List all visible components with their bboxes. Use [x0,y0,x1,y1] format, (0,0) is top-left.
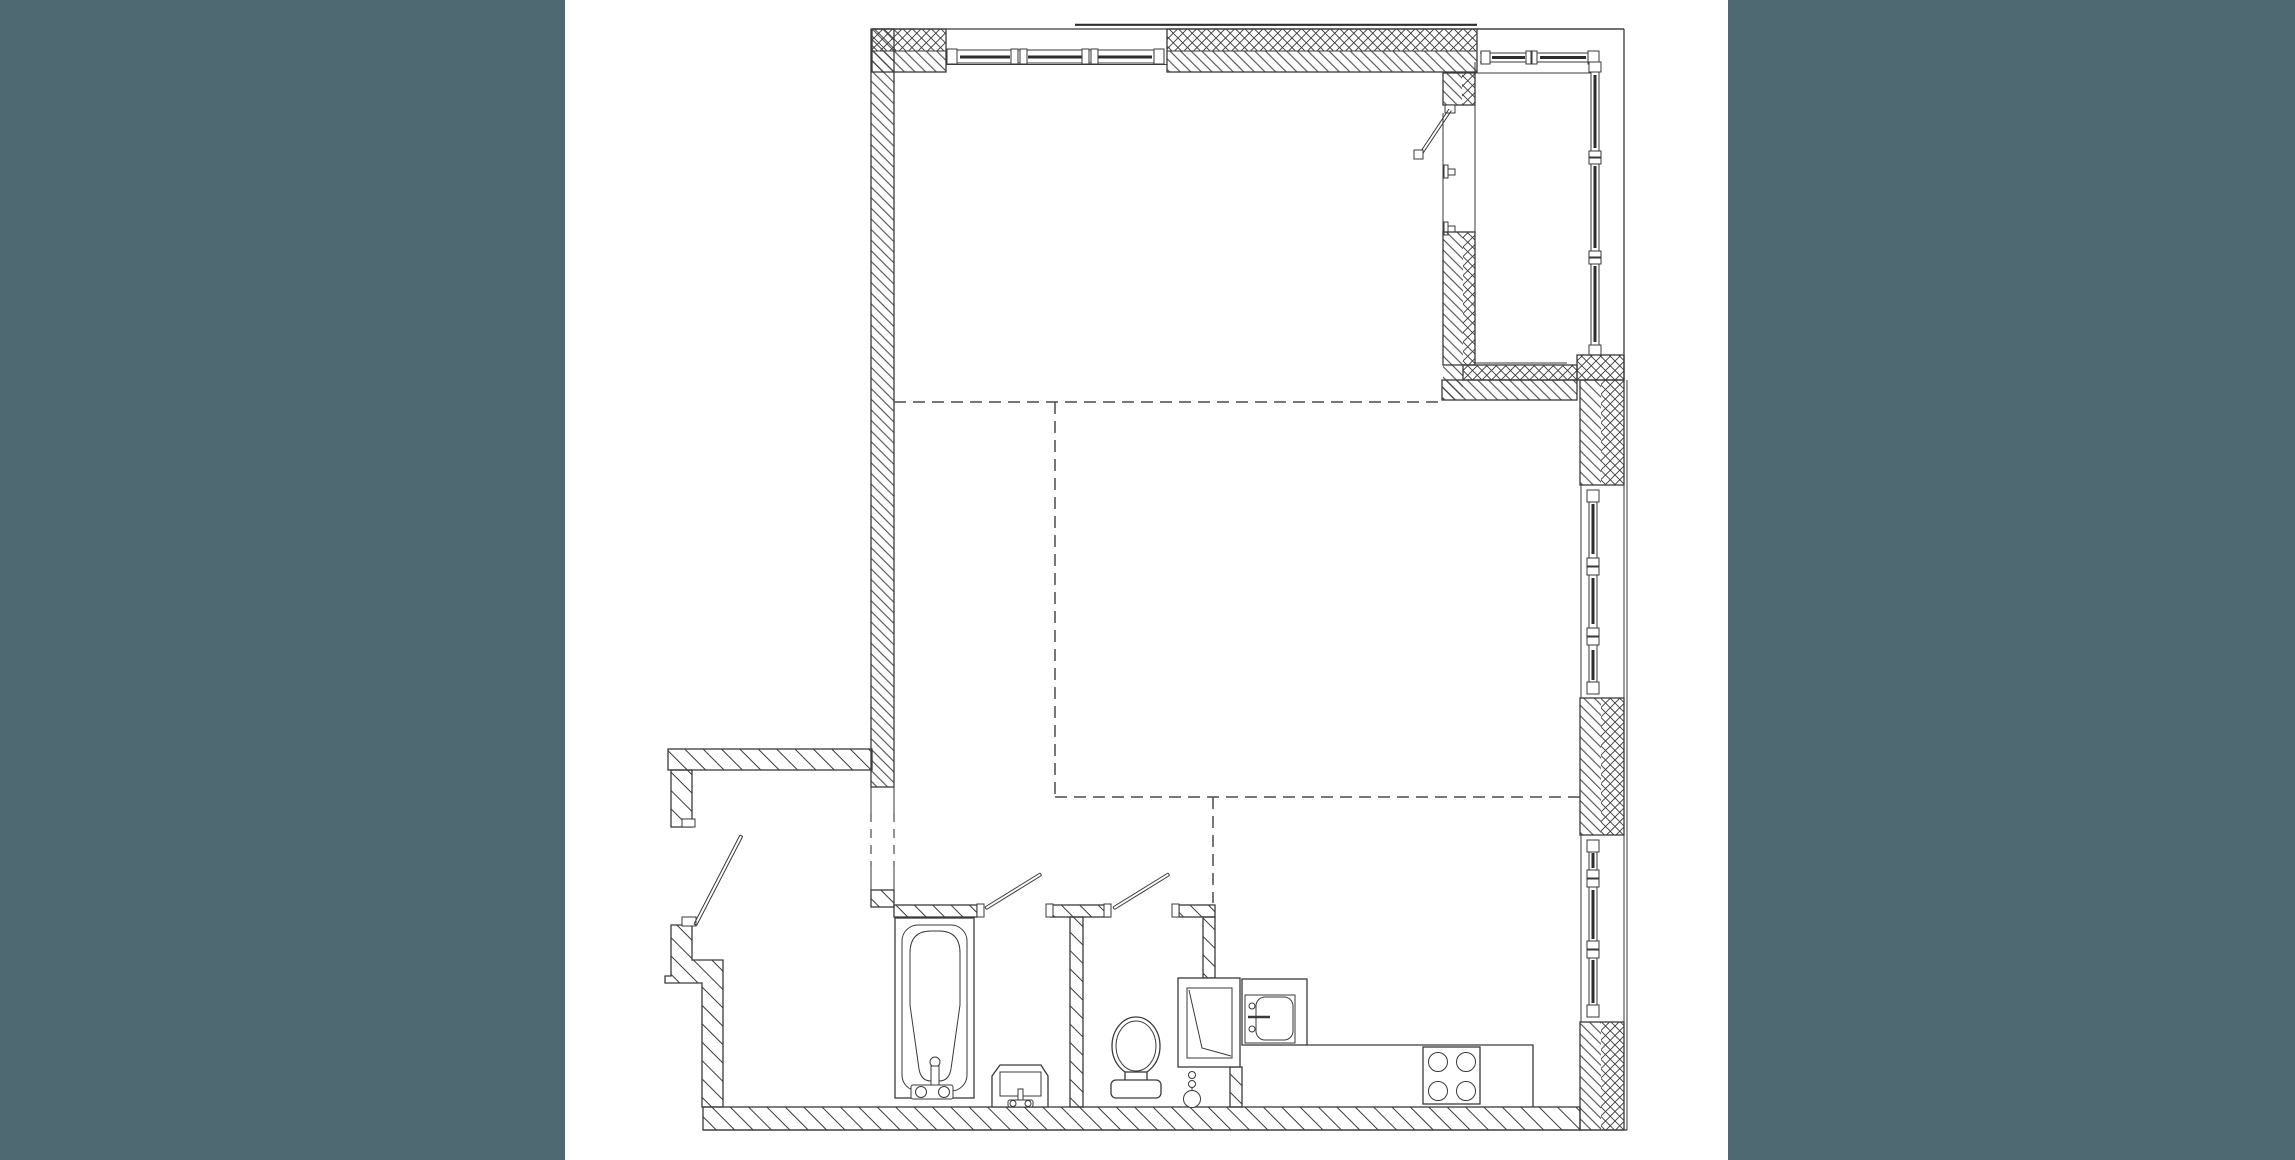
cooktop-4-burner [1423,1047,1480,1104]
door-jamb [977,904,984,917]
window-mullion [1020,49,1027,64]
west-wall [871,29,894,907]
window-mullion [1589,151,1601,157]
window-frame-end [1589,62,1601,72]
window-frame-end [1589,345,1601,355]
screenshot-stage [0,0,2295,1160]
window-mullion [1587,950,1599,958]
burner [1429,1082,1448,1101]
window-frame-end [1587,682,1599,694]
door-jamb [1445,105,1455,113]
window-mullion [1589,258,1601,264]
ventilation-shaft [1178,978,1240,1067]
window-frame-end [1481,51,1490,64]
window-frame-end [1154,49,1164,64]
window-mullion [1587,941,1599,949]
window-mullion [1587,628,1599,636]
window-mullion [1082,49,1089,64]
window-mullion [1589,251,1601,257]
window-mullion [1589,158,1601,164]
bathroom-washbasin [992,1065,1048,1107]
kitchen-sink [1245,995,1295,1043]
window-frame-end [947,49,957,64]
door-jamb [1104,904,1111,917]
window-mullion [1091,49,1098,64]
left-side-panel [0,0,565,1160]
burner [1429,1053,1448,1072]
window-mullion [1526,51,1531,64]
door-jamb [682,917,696,926]
window-mullion [1532,51,1537,64]
window-frame-end [1587,490,1599,502]
door-jamb [682,819,695,827]
window-mullion [1587,567,1599,575]
window-mullion [1587,558,1599,566]
window-mullion [1587,879,1599,887]
burner [1457,1082,1476,1101]
south-wall [703,1107,1627,1130]
window-mullion [1587,870,1599,878]
window-mullion [1587,637,1599,645]
floor-plan-drawing [0,0,2295,1160]
window-frame-end [1587,1005,1599,1017]
right-side-panel [1728,0,2295,1160]
toilet-tank [1111,1080,1161,1098]
window-mullion [1011,49,1018,64]
burner [1457,1053,1476,1072]
door-jamb [1172,904,1179,917]
bath-wc-divider-wall [1070,917,1083,1107]
window-frame-end [1587,840,1599,852]
toilet [1111,1017,1161,1098]
bathtub [895,918,974,1099]
door-jamb [1046,904,1053,917]
